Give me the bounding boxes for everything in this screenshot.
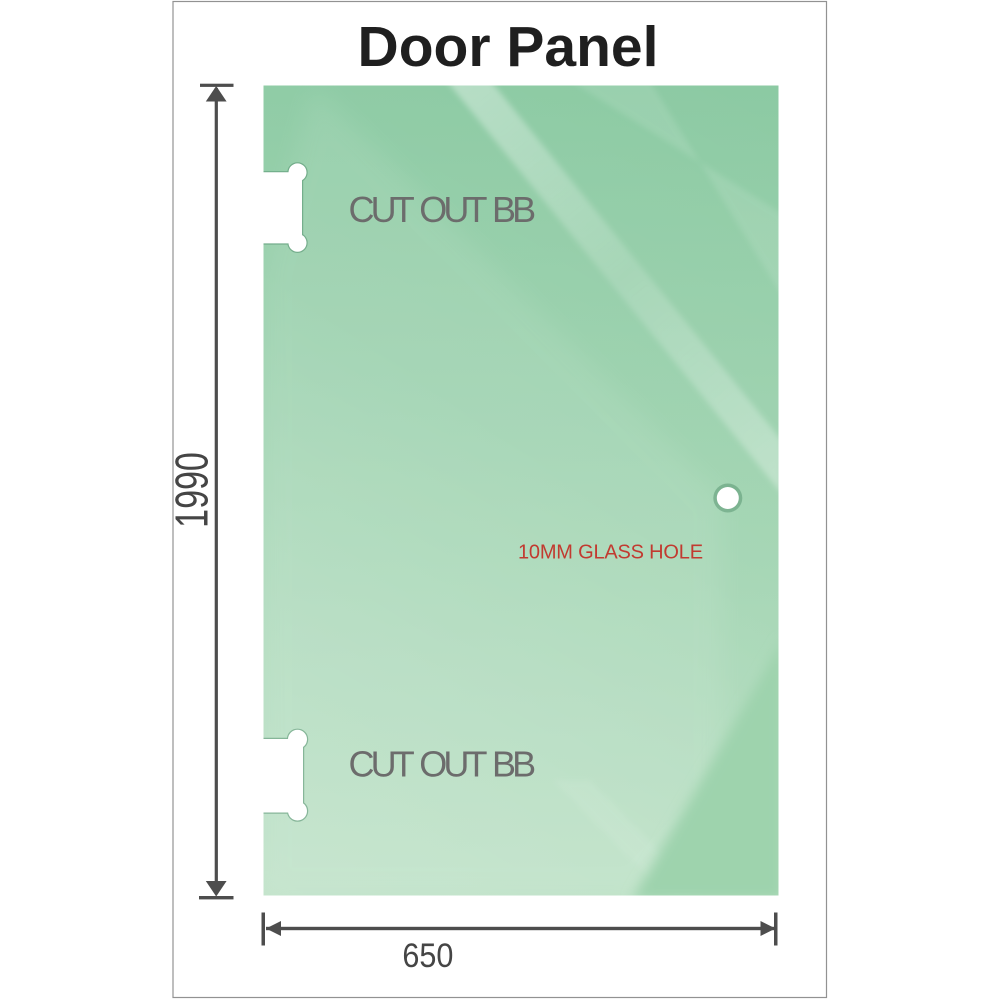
svg-text:Door Panel: Door Panel <box>358 15 659 79</box>
svg-text:650: 650 <box>402 937 453 975</box>
svg-text:1990: 1990 <box>165 452 217 528</box>
svg-text:CUT OUT BB: CUT OUT BB <box>349 189 536 230</box>
svg-text:CUT OUT BB: CUT OUT BB <box>349 744 536 785</box>
svg-text:10MM GLASS HOLE: 10MM GLASS HOLE <box>518 542 703 564</box>
